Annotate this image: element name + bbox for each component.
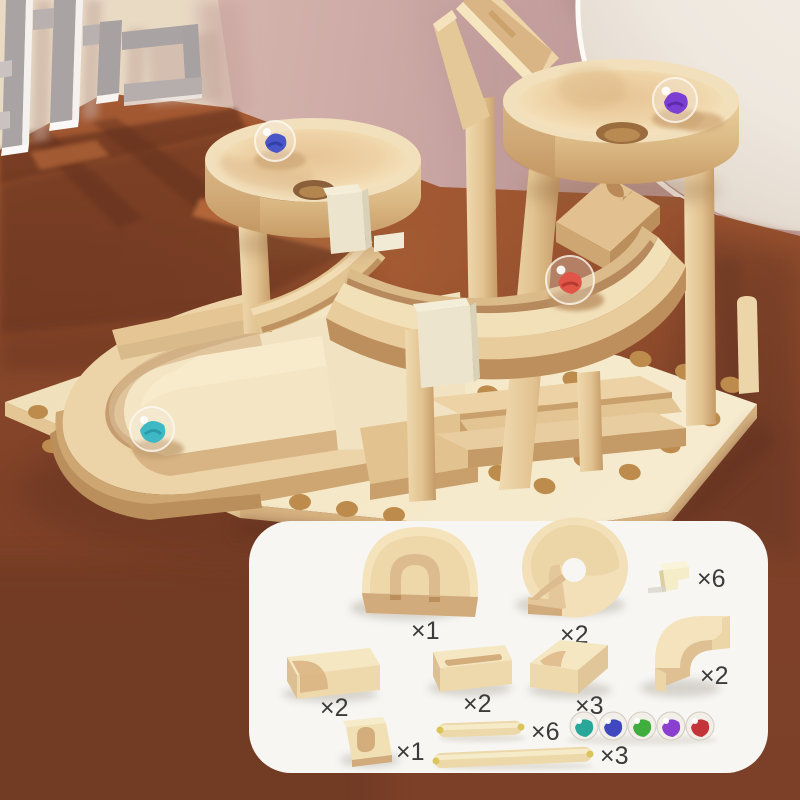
svg-text:×6: ×6: [697, 565, 726, 593]
svg-text:×1: ×1: [396, 738, 425, 766]
svg-text:×3: ×3: [600, 742, 629, 770]
svg-text:×2: ×2: [700, 662, 729, 690]
svg-text:×2: ×2: [463, 690, 492, 718]
svg-text:×6: ×6: [531, 718, 560, 746]
svg-text:×1: ×1: [411, 617, 440, 645]
svg-text:×2: ×2: [320, 694, 349, 722]
